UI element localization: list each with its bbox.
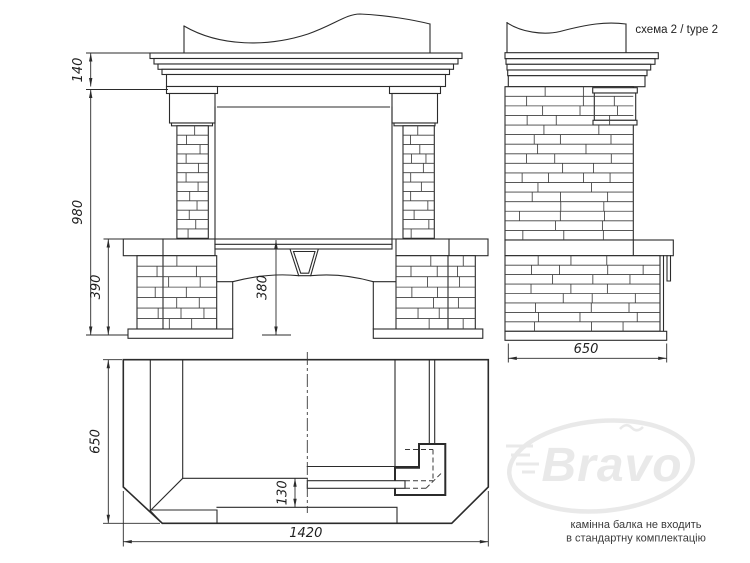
- plan-beam-bar: [307, 481, 405, 489]
- dim-front-base-height: 390: [89, 275, 104, 300]
- technical-drawing-page: Bravo: [0, 0, 750, 563]
- front-capital-left: [167, 87, 218, 126]
- front-plinth-right: [373, 329, 483, 338]
- plan-hidden-beam: [405, 450, 441, 489]
- keystone: [290, 249, 318, 276]
- dim-front-opening-height: 380: [256, 275, 271, 300]
- side-view: [505, 23, 673, 341]
- front-view: [123, 14, 488, 338]
- plan-view: [123, 352, 488, 523]
- dim-front-cornice-height: 140: [71, 58, 86, 83]
- firebox-side-walls: [233, 282, 374, 329]
- dim-plan-hearth-lip: 130: [276, 480, 291, 505]
- side-edge-trim: [664, 256, 671, 332]
- opening-reveals: [215, 107, 392, 239]
- wall-break-edges: [184, 24, 430, 53]
- dim-plan-depth: 650: [89, 429, 104, 454]
- scheme-label: схема 2 / type 2: [635, 24, 718, 36]
- footnote: камінна балка не входить в стандартну ко…: [566, 519, 706, 545]
- side-capital: [593, 88, 638, 125]
- plan-front-strip: [150, 507, 397, 523]
- plan-outline: [123, 360, 488, 524]
- watermark-text: Bravo: [541, 439, 682, 492]
- bird-icon: [620, 425, 643, 430]
- front-shelf-left: [123, 239, 215, 256]
- front-cornice: [150, 53, 462, 87]
- front-capital-right: [390, 87, 441, 126]
- dim-side-depth: 650: [574, 342, 599, 357]
- plan-right-inner-edges: [307, 360, 434, 468]
- front-pedestal-left: [137, 256, 217, 329]
- side-wall-break-line: [507, 23, 626, 33]
- front-lintel-band: [215, 239, 392, 249]
- front-shelf-right: [396, 239, 488, 256]
- plan-left-inner-edges: [150, 360, 182, 524]
- side-plinth: [505, 331, 667, 340]
- front-pedestal-right: [396, 256, 475, 329]
- dim-front-total-height: 980: [71, 200, 86, 225]
- side-cornice: [505, 53, 658, 87]
- side-wall-break-edges: [507, 23, 626, 53]
- side-shelf: [505, 240, 673, 256]
- fireplace-drawing: Bravo: [0, 0, 750, 563]
- watermark-logo: Bravo: [505, 413, 696, 519]
- wall-break-line: [184, 14, 430, 43]
- dim-plan-width: 1420: [289, 526, 322, 541]
- footnote-line-2: в стандартну комплектацію: [566, 533, 706, 545]
- front-plinth-left: [128, 329, 233, 338]
- footnote-line-1: камінна балка не входить: [571, 519, 702, 531]
